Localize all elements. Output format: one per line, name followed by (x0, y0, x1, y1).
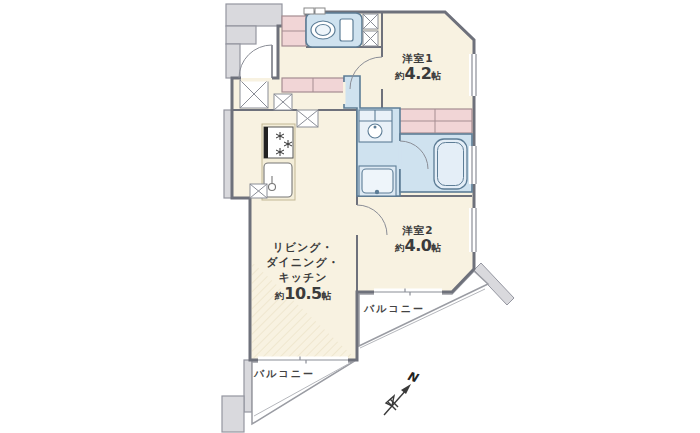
meter-box-icon (250, 184, 267, 198)
ldk-name-line3: キッチン (258, 270, 348, 285)
ldk-name-line1: リビング・ (258, 240, 348, 255)
floor-plan-drawing (0, 0, 700, 433)
room1-size: 約4.2帖 (378, 67, 458, 82)
washroom-door-gap (343, 82, 346, 104)
ldk-size: 約10.5帖 (258, 287, 348, 302)
toilet-door-marks (304, 8, 325, 14)
ldk-name-line2: ダイニング・ (258, 255, 348, 270)
room2-size: 約4.0帖 (378, 239, 458, 254)
washing-machine-icon (359, 166, 396, 196)
room1-label: 洋室1 約4.2帖 (378, 52, 458, 82)
kitchen-sink-icon (264, 163, 292, 197)
washbasin-icon (359, 110, 392, 142)
window-icon (469, 54, 479, 252)
bath-door-gap (399, 141, 402, 169)
stove-icon (264, 127, 293, 158)
entrance-door-swing-icon (239, 45, 272, 78)
ldk-label: リビング・ ダイニング・ キッチン 約10.5帖 (258, 240, 348, 302)
bathtub-icon (434, 139, 467, 189)
entrance-opening-inner (241, 78, 272, 82)
floor-plan: 洋室1 約4.2帖 洋室2 約4.0帖 リビング・ ダイニング・ キッチン 約1… (0, 0, 700, 433)
entrance-opening (241, 75, 272, 79)
room2-label: 洋室2 約4.0帖 (378, 224, 458, 254)
compass-icon (384, 384, 411, 415)
balcony-bottom-label: バルコニー (254, 367, 324, 380)
balcony-right-label: バルコニー (364, 302, 434, 315)
